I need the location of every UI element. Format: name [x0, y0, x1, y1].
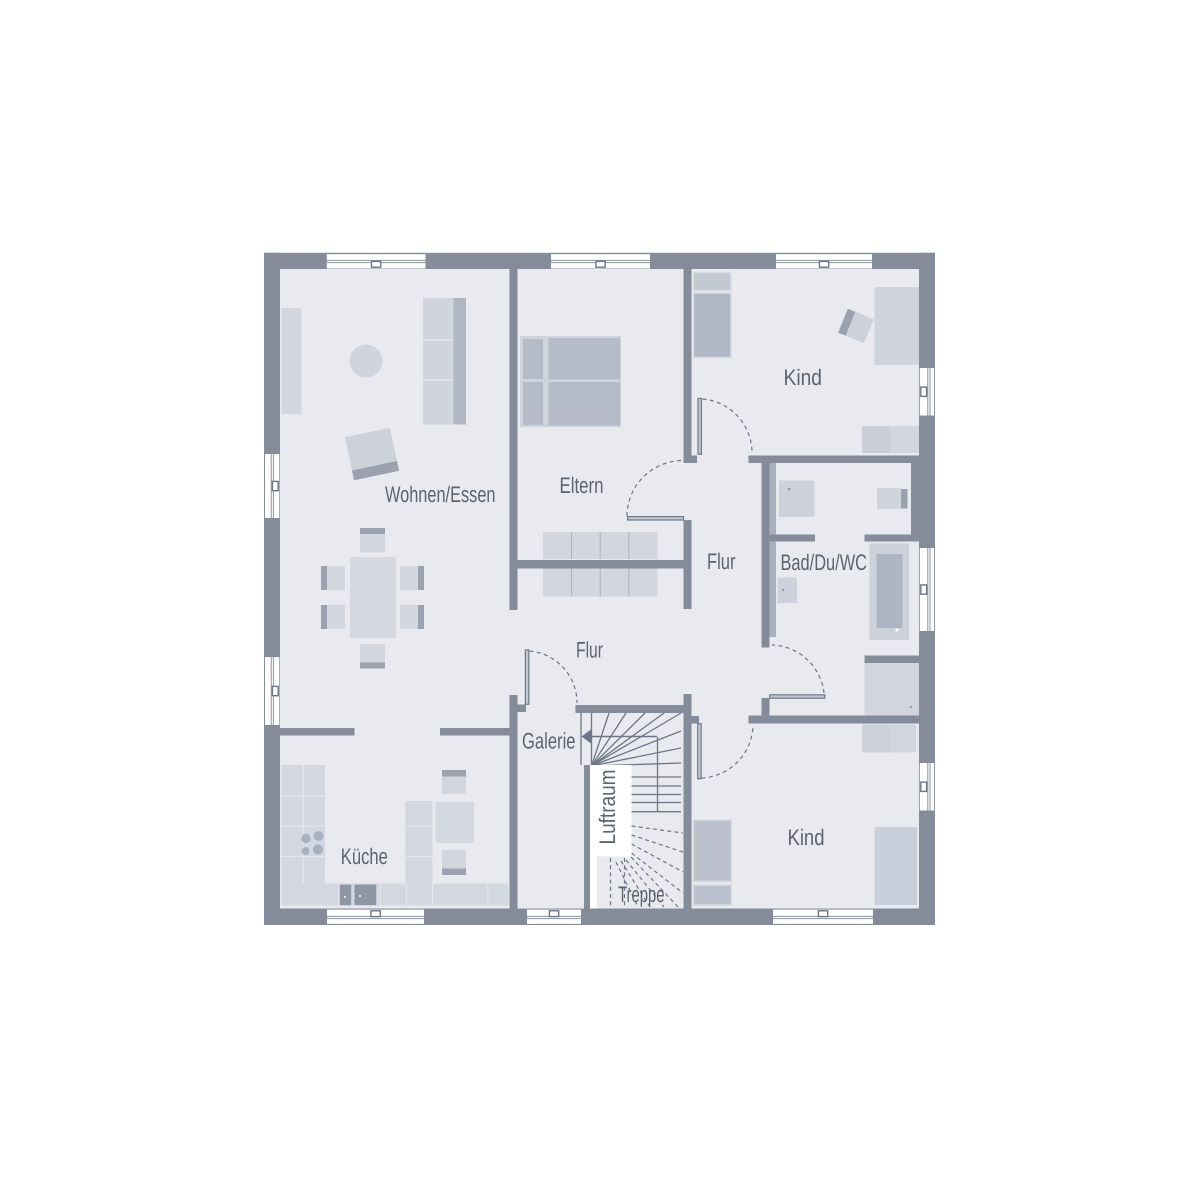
- svg-text:Luftraum: Luftraum: [595, 770, 620, 845]
- svg-text:Küche: Küche: [341, 844, 388, 869]
- svg-text:Bad/Du/WC: Bad/Du/WC: [781, 550, 868, 575]
- svg-text:Treppe: Treppe: [618, 882, 665, 907]
- svg-text:Eltern: Eltern: [560, 473, 604, 498]
- svg-text:Kind: Kind: [784, 365, 823, 390]
- svg-text:Kind: Kind: [788, 825, 825, 850]
- svg-text:Galerie: Galerie: [522, 729, 576, 754]
- svg-text:Flur: Flur: [707, 549, 736, 574]
- svg-text:Wohnen/Essen: Wohnen/Essen: [385, 482, 496, 507]
- svg-text:Flur: Flur: [576, 638, 603, 663]
